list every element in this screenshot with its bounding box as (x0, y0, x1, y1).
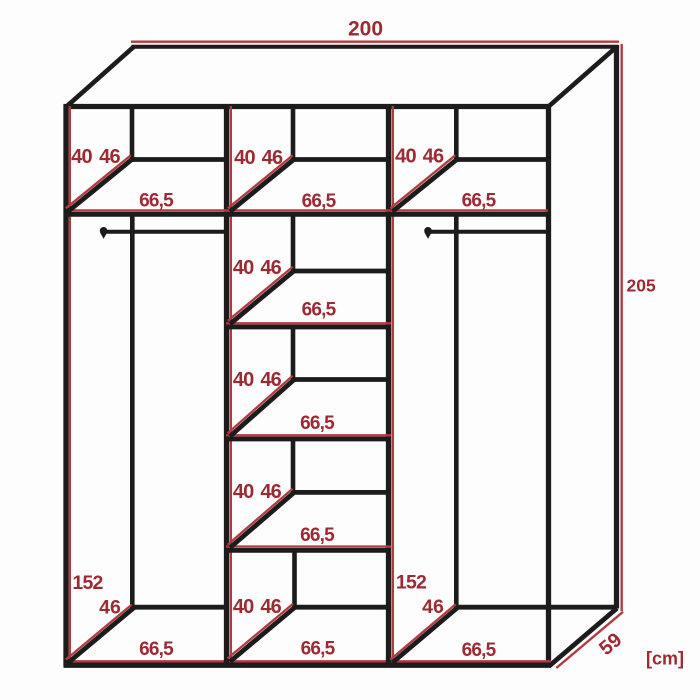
svg-text:46: 46 (422, 596, 444, 618)
svg-text:40: 40 (71, 146, 92, 168)
svg-text:66,5: 66,5 (139, 639, 174, 660)
svg-text:66,5: 66,5 (302, 300, 337, 321)
svg-text:46: 46 (423, 146, 444, 168)
svg-text:46: 46 (99, 597, 121, 619)
svg-text:152: 152 (72, 572, 103, 594)
svg-text:46: 46 (260, 481, 281, 503)
svg-text:66,5: 66,5 (300, 413, 335, 434)
svg-text:66,5: 66,5 (301, 639, 336, 660)
svg-text:152: 152 (396, 572, 427, 594)
svg-text:46: 46 (99, 146, 120, 168)
svg-text:46: 46 (260, 369, 281, 391)
svg-text:40: 40 (234, 147, 255, 169)
svg-text:66,5: 66,5 (300, 525, 335, 546)
svg-text:40: 40 (233, 369, 254, 391)
svg-text:46: 46 (260, 257, 281, 279)
svg-text:66,5: 66,5 (462, 640, 497, 661)
svg-text:46: 46 (260, 596, 281, 618)
svg-text:66,5: 66,5 (302, 191, 337, 212)
svg-text:40: 40 (233, 596, 254, 618)
svg-text:40: 40 (233, 257, 254, 279)
svg-text:40: 40 (233, 481, 254, 503)
svg-text:205: 205 (627, 276, 656, 296)
svg-text:[cm]: [cm] (646, 649, 684, 669)
svg-text:66,5: 66,5 (462, 191, 497, 212)
svg-text:66,5: 66,5 (139, 191, 174, 212)
svg-text:200: 200 (348, 18, 383, 41)
svg-text:46: 46 (262, 147, 283, 169)
svg-text:40: 40 (395, 146, 416, 168)
